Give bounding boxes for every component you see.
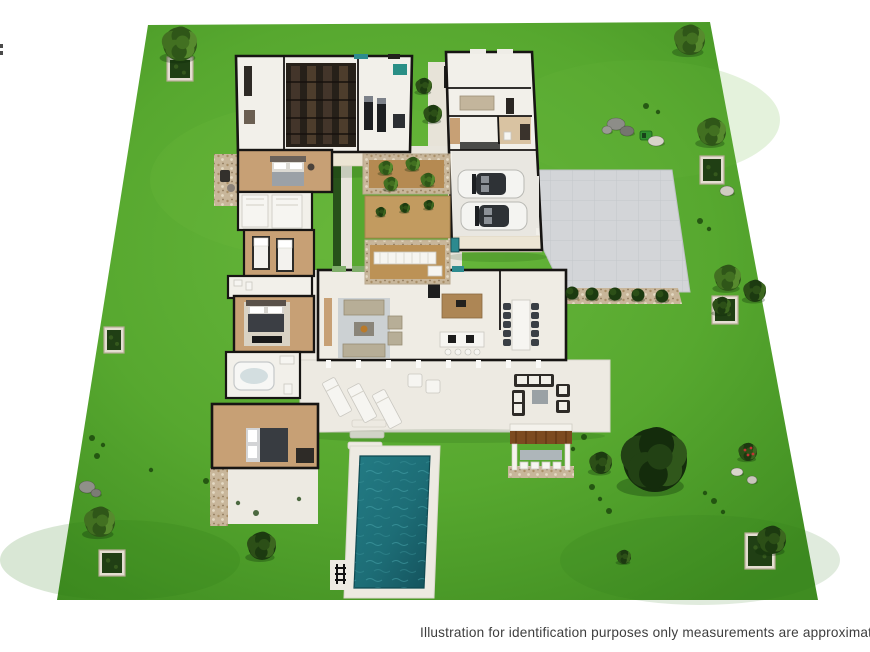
pergola-dining-table	[520, 450, 562, 460]
pool-ladder	[335, 564, 346, 584]
twin-bed-2	[276, 238, 294, 272]
wc-sink	[234, 280, 242, 286]
gym-mat	[393, 64, 407, 75]
garage	[452, 150, 536, 236]
pool-ripples	[354, 456, 430, 588]
dining-table	[512, 300, 530, 350]
hedge-planter-left	[104, 327, 124, 353]
bath-vanity	[280, 356, 294, 364]
bar-stool-3	[465, 349, 471, 355]
bedroom-a	[238, 150, 332, 192]
ac-unit-1	[451, 238, 459, 252]
wing-bathroom	[498, 116, 531, 144]
wine-cellar	[286, 63, 356, 147]
master-bedroom	[234, 296, 314, 352]
lawn-highlight-2	[500, 60, 780, 180]
courtyard-planters	[363, 154, 450, 284]
bar-stool-2	[455, 349, 461, 355]
lounge-table	[532, 390, 548, 404]
south-bed-blanket	[260, 428, 288, 462]
wardrobe-room	[238, 192, 312, 230]
shadow-garage-wing	[447, 252, 547, 262]
flower	[752, 453, 755, 456]
master-blanket	[248, 314, 284, 332]
car-1	[458, 170, 524, 198]
armchair-1	[388, 316, 402, 329]
pergola-beam	[510, 424, 572, 431]
flower	[744, 449, 747, 452]
courtyard-side-table	[428, 266, 442, 276]
pouf-2	[426, 380, 440, 393]
clerestory-green-2	[352, 266, 366, 272]
toilet	[504, 132, 511, 140]
bed-bench	[252, 336, 282, 343]
twin-bedroom	[244, 230, 314, 276]
wing-window-1	[470, 49, 486, 54]
armchair-2	[388, 332, 402, 345]
pergola-column-right	[565, 444, 570, 470]
hedge-planter-bottom-left	[99, 550, 125, 576]
south-bedroom	[212, 404, 318, 468]
planter-bench	[365, 240, 450, 284]
flower	[750, 447, 753, 450]
sink-2	[466, 335, 474, 343]
side-table	[308, 164, 315, 171]
main-bathroom	[226, 352, 300, 398]
bar-stool-4	[474, 349, 480, 355]
hedge-planter-right-upper	[700, 156, 724, 184]
tv-unit	[506, 98, 514, 114]
floor-plan-illustration: Illustration for identification purposes…	[0, 0, 870, 652]
storage-shelf	[244, 66, 252, 96]
sofa-north	[344, 300, 384, 315]
master-headboard	[246, 300, 286, 306]
bed-blanket	[272, 172, 304, 186]
pouf-1	[408, 374, 422, 387]
garage-threshold	[460, 142, 500, 150]
planter-bushes	[363, 154, 450, 194]
corridor-wc	[228, 276, 312, 298]
console-table	[324, 298, 332, 346]
garage-wing	[441, 49, 542, 261]
lawn-shade-2	[560, 515, 840, 605]
vanity	[520, 124, 530, 140]
car-2	[461, 202, 527, 230]
storage-boxes	[244, 110, 255, 124]
patio-table	[227, 184, 235, 192]
wardrobe-1	[242, 195, 268, 227]
sink-1	[448, 335, 456, 343]
dining-area	[503, 300, 539, 350]
patio-chair	[220, 170, 230, 182]
kitchen-counter	[440, 332, 484, 347]
courtyard-bench	[374, 252, 436, 264]
pergola-base	[508, 466, 574, 478]
sofa-south	[343, 344, 385, 357]
flower	[747, 454, 750, 457]
garage-door-opening	[535, 176, 539, 228]
decor-bowl	[361, 326, 368, 333]
lounge-sofa	[460, 96, 494, 110]
bath-toilet	[284, 384, 292, 394]
clerestory-window	[354, 54, 368, 59]
patio-stone-edge	[210, 468, 228, 526]
wc-toilet	[246, 282, 252, 290]
weight-bench	[393, 114, 405, 128]
south-closet	[296, 448, 314, 463]
twin-bed-1	[252, 236, 270, 270]
hob	[456, 300, 466, 307]
wing-window-2	[497, 49, 513, 54]
bed-headboard	[270, 156, 306, 162]
pergola-column-left	[512, 444, 517, 470]
bar-stool-1	[445, 349, 451, 355]
wardrobe-2	[272, 195, 302, 228]
caption-text: Illustration for identification purposes…	[420, 625, 870, 640]
clerestory-teal	[452, 266, 464, 272]
pergola-roof	[510, 431, 572, 444]
north-door	[388, 54, 400, 59]
clerestory-green-1	[332, 266, 346, 272]
